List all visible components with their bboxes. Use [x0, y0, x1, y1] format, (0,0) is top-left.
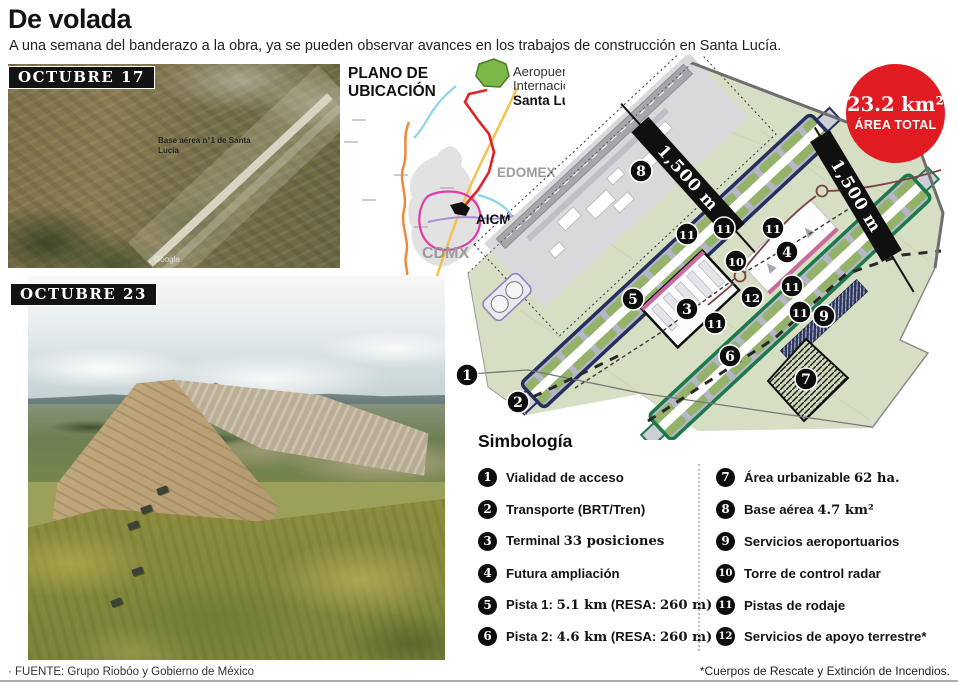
- svg-text:11: 11: [679, 228, 695, 242]
- svg-text:11: 11: [707, 317, 723, 331]
- highway-orange: [402, 122, 409, 275]
- legend-number-badge: 11: [716, 596, 735, 615]
- legend-item-label: Futura ampliación: [506, 566, 620, 581]
- area-label: ÁREA TOTAL: [855, 118, 937, 132]
- legend-item-9: 9Servicios aeroportuarios: [716, 526, 956, 558]
- footnote: *Cuerpos de Rescate y Extinción de Incen…: [700, 664, 950, 678]
- svg-text:11: 11: [765, 222, 781, 236]
- legend-item-label: Área urbanizable 62 ha.: [744, 470, 900, 486]
- legend-item-10: 10Torre de control radar: [716, 557, 956, 589]
- legend-divider: [698, 464, 700, 651]
- legend-title: Simbología: [478, 431, 956, 452]
- map-title-line1: PLANO DE: [348, 65, 428, 82]
- legend-item-label: Servicios de apoyo terrestre*: [744, 629, 927, 644]
- legend-number-badge: 6: [478, 627, 497, 646]
- legend-column-right: 7Área urbanizable 62 ha.8Base aérea 4.7 …: [702, 462, 956, 653]
- map-watermark: Google: [154, 255, 180, 264]
- legend-item-label: Pistas de rodaje: [744, 598, 845, 613]
- plan-marker-11: 11: [789, 301, 811, 323]
- svg-text:10: 10: [728, 255, 744, 269]
- plan-marker-3: 3: [676, 298, 698, 320]
- svg-text:8: 8: [636, 164, 646, 180]
- plan-marker-8: 8: [630, 160, 652, 182]
- legend: Simbología 1Vialidad de acceso2Transport…: [478, 431, 956, 653]
- plan-marker-7: 7: [795, 368, 817, 390]
- header: De volada A una semana del banderazo a l…: [8, 4, 948, 54]
- svg-text:7: 7: [801, 372, 811, 388]
- plan-marker-12: 12: [741, 286, 763, 308]
- legend-item-2: 2Transporte (BRT/Tren): [478, 494, 696, 526]
- legend-number-badge: 5: [478, 596, 497, 615]
- photo2-date-label: OCTUBRE 23: [10, 283, 157, 306]
- legend-item-label: Servicios aeroportuarios: [744, 534, 899, 549]
- svg-text:3: 3: [682, 302, 692, 318]
- legend-number-badge: 8: [716, 500, 735, 519]
- legend-item-8: 8Base aérea 4.7 km²: [716, 494, 956, 526]
- legend-item-label: Pista 1: 5.1 km (RESA: 260 m): [506, 597, 712, 613]
- svg-text:11: 11: [716, 222, 732, 236]
- legend-number-badge: 3: [478, 532, 497, 551]
- legend-number-badge: 12: [716, 627, 735, 646]
- plan-marker-11: 11: [762, 217, 784, 239]
- legend-item-11: 11Pistas de rodaje: [716, 589, 956, 621]
- existing-runway-strip: [147, 93, 332, 267]
- legend-item-5: 5Pista 1: 5.1 km (RESA: 260 m): [478, 589, 696, 621]
- svg-text:2: 2: [513, 395, 523, 411]
- svg-text:4: 4: [782, 245, 792, 261]
- plan-marker-5: 5: [622, 288, 644, 310]
- plan-marker-6: 6: [719, 345, 741, 367]
- plan-marker-11: 11: [676, 223, 698, 245]
- page-title: De volada: [8, 4, 948, 35]
- photo1-date-label: OCTUBRE 17: [8, 66, 155, 89]
- legend-item-1: 1Vialidad de acceso: [478, 462, 696, 494]
- plan-marker-1: 1: [456, 364, 478, 386]
- plan-marker-10: 10: [725, 250, 747, 272]
- plan-marker-4: 4: [776, 241, 798, 263]
- area-total-badge: 23.2 km² ÁREA TOTAL: [846, 64, 945, 163]
- map-title-line2: UBICACIÓN: [348, 82, 436, 100]
- area-value: 23.2 km²: [847, 95, 944, 115]
- plan-marker-9: 9: [813, 305, 835, 327]
- svg-text:12: 12: [744, 291, 760, 305]
- foreground-vegetation: [28, 499, 445, 660]
- svg-text:1: 1: [462, 368, 472, 384]
- legend-item-label: Transporte (BRT/Tren): [506, 502, 645, 517]
- svg-text:6: 6: [725, 349, 735, 365]
- legend-item-6: 6Pista 2: 4.6 km (RESA: 260 m): [478, 621, 696, 653]
- cleared-area: [128, 65, 340, 268]
- page-subtitle: A una semana del banderazo a la obra, ya…: [9, 38, 948, 54]
- legend-item-label: Pista 2: 4.6 km (RESA: 260 m): [506, 629, 712, 645]
- plan-marker-2: 2: [507, 391, 529, 413]
- legend-number-badge: 1: [478, 468, 497, 487]
- legend-item-7: 7Área urbanizable 62 ha.: [716, 462, 956, 494]
- legend-number-badge: 4: [478, 564, 497, 583]
- legend-item-3: 3Terminal 33 posiciones: [478, 526, 696, 558]
- legend-item-label: Base aérea 4.7 km²: [744, 502, 874, 518]
- photo-octubre-23: [28, 276, 445, 660]
- legend-item-label: Terminal 33 posiciones: [506, 533, 664, 549]
- source-note: · FUENTE: Grupo Riobóo y Gobierno de Méx…: [8, 666, 254, 678]
- svg-text:9: 9: [819, 309, 829, 325]
- svg-text:5: 5: [628, 292, 638, 308]
- roundabout: [817, 186, 828, 197]
- legend-number-badge: 7: [716, 468, 735, 487]
- legend-item-label: Torre de control radar: [744, 566, 881, 581]
- legend-item-label: Vialidad de acceso: [506, 470, 624, 485]
- legend-item-4: 4Futura ampliación: [478, 557, 696, 589]
- legend-item-12: 12Servicios de apoyo terrestre*: [716, 621, 956, 653]
- plan-marker-11: 11: [781, 275, 803, 297]
- photo-octubre-17: Base aérea n°1 de Santa Lucía Google: [8, 64, 340, 268]
- legend-columns: 1Vialidad de acceso2Transporte (BRT/Tren…: [478, 462, 956, 653]
- legend-number-badge: 10: [716, 564, 735, 583]
- legend-column-left: 1Vialidad de acceso2Transporte (BRT/Tren…: [478, 462, 696, 653]
- legend-number-badge: 9: [716, 532, 735, 551]
- plan-marker-11: 11: [704, 312, 726, 334]
- svg-text:11: 11: [792, 306, 808, 320]
- photo1-caption: Base aérea n°1 de Santa Lucía: [158, 136, 258, 156]
- svg-text:11: 11: [784, 280, 800, 294]
- legend-number-badge: 2: [478, 500, 497, 519]
- plan-marker-11: 11: [713, 217, 735, 239]
- infographic-page: De volada A una semana del banderazo a l…: [0, 0, 958, 682]
